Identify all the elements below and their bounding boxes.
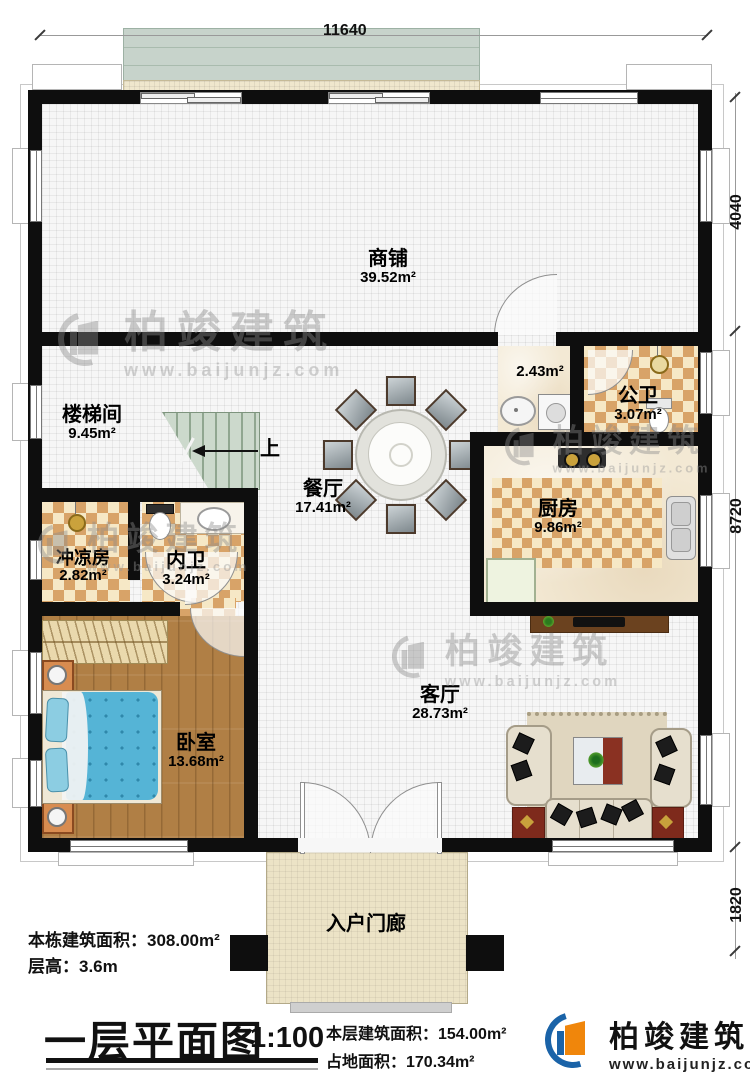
window	[540, 92, 638, 104]
room-area: 9.45m²	[62, 426, 122, 443]
kitchen-sink-basin	[671, 528, 691, 552]
room-label-public-bath: 公卫 3.07m²	[614, 385, 662, 424]
room-label-ensuite: 内卫 3.24m²	[162, 550, 210, 589]
bed-pillow	[45, 747, 69, 792]
room-area: 9.86m²	[534, 520, 582, 537]
room-name: 厨房	[534, 498, 582, 520]
top-dimension-line	[40, 35, 708, 36]
window	[700, 352, 712, 414]
stairs-arrow-head	[192, 445, 205, 457]
room-name: 冲凉房	[56, 548, 110, 568]
washbasin-drain	[514, 408, 518, 412]
window-sill	[712, 733, 730, 807]
window	[70, 840, 188, 852]
building-total-area: 本栋建筑面积：308.00m²	[28, 926, 220, 951]
room-area: 2.43m²	[516, 364, 564, 381]
window	[30, 385, 42, 439]
room-area: 17.41m²	[295, 500, 351, 517]
floor-plan: 11640 4040 8720 1820	[0, 0, 750, 1086]
window-sill	[626, 64, 712, 90]
shop-sliding-door	[140, 92, 242, 104]
room-name: 客厅	[412, 684, 468, 706]
right-dim-middle: 8720	[728, 481, 746, 551]
room-name: 餐厅	[295, 478, 351, 500]
ensuite-sink	[197, 507, 231, 531]
water-heater	[650, 355, 669, 374]
porch-step	[290, 1002, 452, 1013]
wall-bath-divider	[128, 502, 140, 580]
window	[552, 840, 674, 852]
wall-shop-south-left	[28, 332, 498, 346]
wall-kitchen-south	[470, 602, 712, 616]
right-dim-upper: 4040	[728, 177, 746, 247]
room-name: 卧室	[168, 732, 224, 754]
entry-opening	[298, 838, 442, 852]
window-sill	[58, 852, 194, 866]
porch-pillar-right	[466, 935, 504, 971]
stairs-up-label: 上	[260, 438, 280, 460]
right-dim-lower: 1820	[728, 870, 746, 940]
wall-public-bath-west	[570, 346, 584, 432]
room-name: 商铺	[360, 248, 416, 270]
wall-bath-north	[28, 488, 258, 502]
room-area: 3.07m²	[614, 407, 662, 424]
stove-burner	[586, 452, 602, 468]
room-area: 28.73m²	[412, 706, 468, 723]
room-label-corridor: 2.43m²	[516, 364, 564, 381]
window-sill	[32, 64, 122, 90]
stove-burner	[564, 452, 580, 468]
brand-name: 柏竣建筑	[609, 1012, 750, 1056]
brand-website: www.baijunjz.com	[609, 1056, 750, 1073]
room-area: 3.24m²	[162, 572, 210, 589]
footprint-label: 占地面积：170.34m²	[326, 1048, 475, 1072]
room-label-stairwell: 楼梯间 9.45m²	[62, 404, 122, 443]
window	[30, 150, 42, 222]
wall-kitchen-west	[470, 446, 484, 602]
room-label-shower-room: 冲凉房 2.82m²	[56, 548, 110, 585]
top-dimension-label: 11640	[323, 22, 367, 40]
up-text: 上	[260, 438, 280, 460]
floor-area-label: 本层建筑面积：154.00m²	[326, 1020, 507, 1044]
room-area: 13.68m²	[168, 754, 224, 771]
room-area: 2.82m²	[56, 568, 110, 585]
window	[700, 150, 712, 222]
window	[700, 495, 712, 567]
room-label-living: 客厅 28.73m²	[412, 684, 468, 723]
room-label-kitchen: 厨房 9.86m²	[534, 498, 582, 537]
balcony-roof	[123, 28, 480, 82]
wall-kitchen-north	[470, 432, 712, 446]
window	[700, 735, 712, 805]
room-name: 入户门廊	[326, 913, 406, 935]
shop-sliding-door	[328, 92, 430, 104]
wall-shop-south-right	[556, 332, 712, 346]
washbasin	[500, 396, 536, 426]
room-name: 公卫	[614, 385, 662, 407]
window	[30, 652, 42, 714]
shower-cord	[75, 502, 76, 514]
water-heater-cord	[657, 346, 658, 356]
tv	[573, 617, 625, 627]
wall-bedroom-north	[28, 602, 180, 616]
bed-pillow	[45, 697, 69, 742]
dining-chair	[323, 440, 353, 470]
room-name: 楼梯间	[62, 404, 122, 426]
porch-pillar-left	[230, 935, 268, 971]
room-label-dining: 餐厅 17.41m²	[295, 478, 351, 517]
washing-machine-drum	[546, 403, 566, 423]
wardrobe	[42, 620, 168, 664]
room-area: 39.52m²	[360, 270, 416, 287]
toilet-ensuite-bowl	[149, 512, 171, 540]
tv-plant	[543, 616, 554, 627]
window-sill	[712, 350, 730, 416]
room-name: 内卫	[162, 550, 210, 572]
brand-logo-icon	[545, 1012, 601, 1068]
floor-height: 层高：3.6m	[28, 952, 118, 977]
scale-label: 1:100	[250, 1022, 324, 1055]
nightstand-lamp	[47, 665, 67, 685]
room-label-bedroom: 卧室 13.68m²	[168, 732, 224, 771]
title-underline	[46, 1058, 318, 1063]
dining-chair	[386, 376, 416, 406]
shower-head	[68, 514, 86, 532]
window	[30, 540, 42, 580]
nightstand-lamp	[47, 807, 67, 827]
stairs-arrow-line	[204, 450, 258, 452]
room-label-porch: 入户门廊	[326, 913, 406, 935]
kitchen-sink-basin	[671, 502, 691, 526]
dining-table-center	[389, 443, 413, 467]
title-underline-thin	[46, 1068, 318, 1070]
wall-center-vertical	[244, 488, 258, 838]
fridge	[486, 558, 536, 606]
coffee-table-plant	[588, 752, 604, 768]
window-sill	[548, 852, 678, 866]
window	[30, 760, 42, 807]
dining-chair	[386, 504, 416, 534]
room-label-shop: 商铺 39.52m²	[360, 248, 416, 287]
brand-logo: 柏竣建筑 www.baijunjz.com	[545, 1012, 750, 1073]
